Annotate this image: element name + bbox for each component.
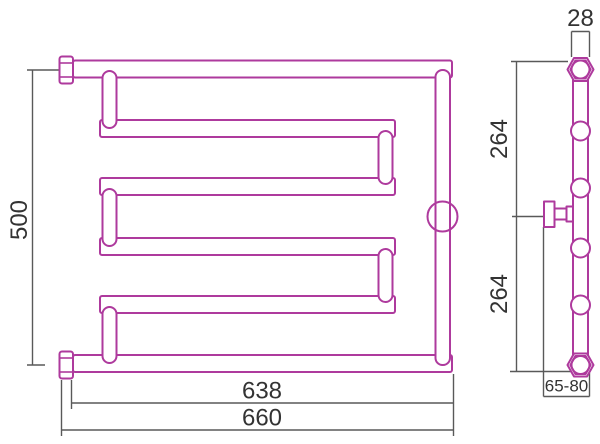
wall-offset-dimension-label: 65-80	[545, 377, 588, 396]
hex-fitting-bottom	[568, 354, 594, 377]
overall-width-dimension-label: 660	[242, 405, 282, 432]
lower-span-dimension-label: 264	[486, 274, 513, 314]
hex-fitting-top	[568, 58, 594, 81]
wall-bracket	[544, 202, 573, 228]
left-connector	[103, 307, 117, 363]
union-joint-circle	[571, 179, 590, 198]
union-joint-circle	[571, 122, 590, 141]
serpentine-bar	[100, 296, 395, 313]
pipe-length-dimension-label: 638	[242, 378, 282, 405]
union-joint-circle	[571, 239, 590, 258]
hex-nut-body	[60, 352, 74, 379]
side-pipe	[573, 70, 588, 365]
drawing-canvas: 500 638 660 28 264 264 65-80	[0, 0, 600, 444]
right-collector-pipe	[436, 70, 451, 365]
dimension-lines-diameter	[572, 32, 590, 58]
diameter-dimension-label: 28	[567, 5, 594, 32]
towel-rail-technical-drawing: 500 638 660 28 264 264 65-80	[0, 0, 600, 444]
serpentine-bar	[100, 178, 395, 195]
bracket-plate	[544, 202, 555, 228]
hex-fitting-bottom-left	[60, 352, 74, 379]
right-connector	[379, 249, 393, 302]
bracket-fitting	[567, 207, 574, 222]
left-connector	[103, 71, 117, 128]
upper-span-dimension-label: 264	[486, 119, 513, 159]
union-joint-circle	[571, 296, 590, 315]
top-rail	[73, 61, 452, 78]
hex-fitting-top-left	[60, 57, 74, 84]
hex-nut-body	[60, 57, 74, 84]
serpentine-bar	[100, 120, 395, 137]
left-connector	[103, 189, 117, 246]
front-view	[60, 57, 458, 379]
bracket-arm	[555, 209, 567, 220]
right-connector	[379, 131, 393, 184]
serpentine-bar	[100, 238, 395, 255]
bottom-rail	[73, 355, 452, 372]
height-dimension-label: 500	[6, 200, 33, 240]
side-view	[544, 58, 594, 377]
